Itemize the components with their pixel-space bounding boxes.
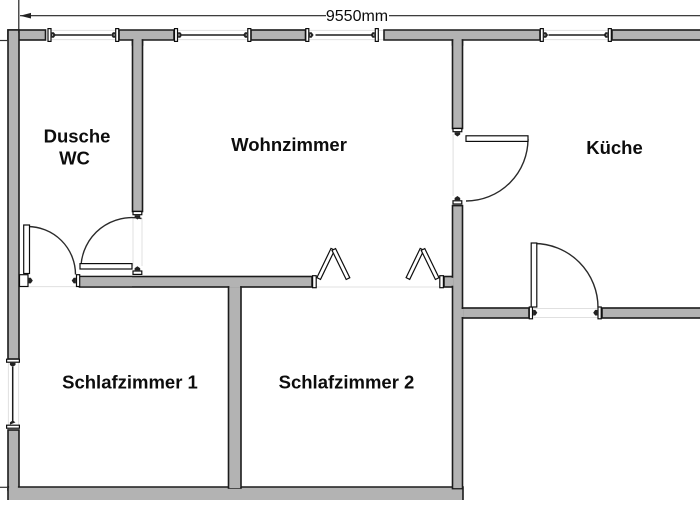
svg-text:Wohnzimmer: Wohnzimmer — [231, 134, 347, 155]
svg-text:Schlafzimmer 2: Schlafzimmer 2 — [279, 372, 415, 393]
svg-text:WC: WC — [59, 148, 90, 169]
svg-text:Schlafzimmer 1: Schlafzimmer 1 — [62, 372, 198, 393]
svg-text:9550mm: 9550mm — [326, 8, 388, 25]
svg-text:Küche: Küche — [586, 137, 643, 158]
svg-text:Dusche: Dusche — [44, 126, 111, 147]
